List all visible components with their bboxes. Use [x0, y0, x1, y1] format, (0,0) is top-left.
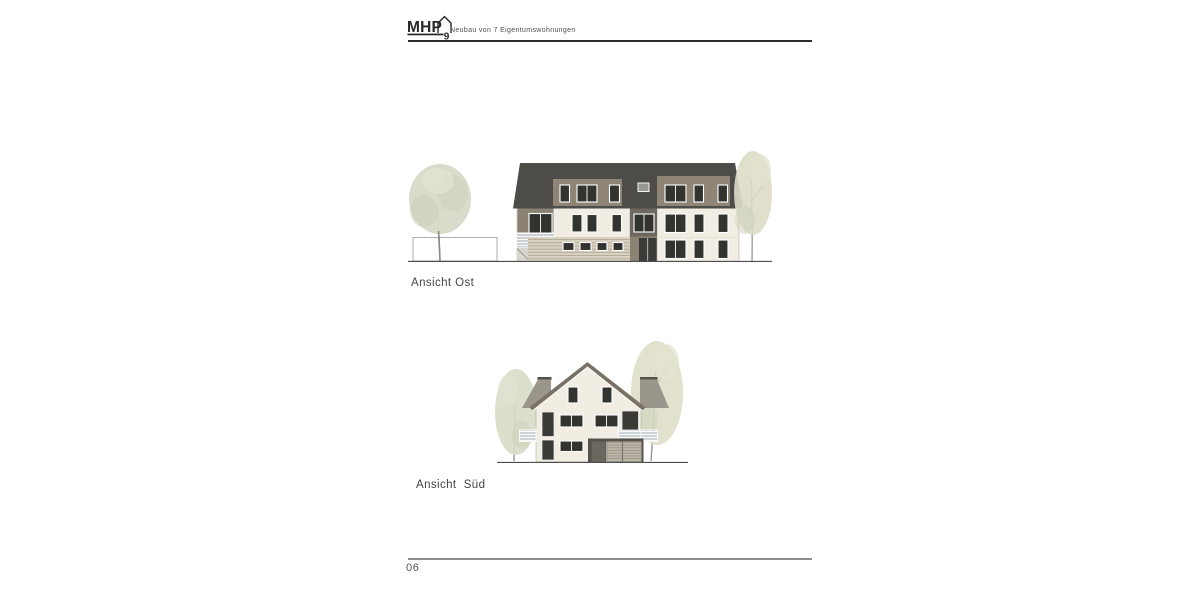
- east-elevation-label: Ansicht Ost: [411, 277, 474, 289]
- project-subtitle: Neubau von 7 Eigentumswohnungen: [450, 27, 576, 34]
- south-elevation-label: Ansicht Süd: [416, 479, 485, 491]
- garage-door: [588, 439, 644, 463]
- tree-icon: [734, 151, 772, 261]
- company-logo: MHP 9: [407, 12, 455, 41]
- logo-text: MHP: [407, 19, 442, 36]
- east-elevation-drawing: [405, 140, 775, 265]
- logo-underline: [408, 34, 444, 36]
- building-east: [513, 163, 743, 262]
- tree-icon: [495, 369, 537, 461]
- footer-rule: [408, 558, 812, 560]
- left-floor-windows: [572, 215, 622, 233]
- page-number: 06: [406, 562, 419, 574]
- document-page: MHP 9 Neubau von 7 Eigentumswohnungen: [0, 0, 1200, 600]
- header-rule: [408, 40, 812, 42]
- fence-outline: [413, 238, 497, 262]
- south-elevation-drawing: [493, 335, 693, 467]
- siding-ground-floor: [528, 237, 630, 262]
- skylight-window: [638, 183, 649, 192]
